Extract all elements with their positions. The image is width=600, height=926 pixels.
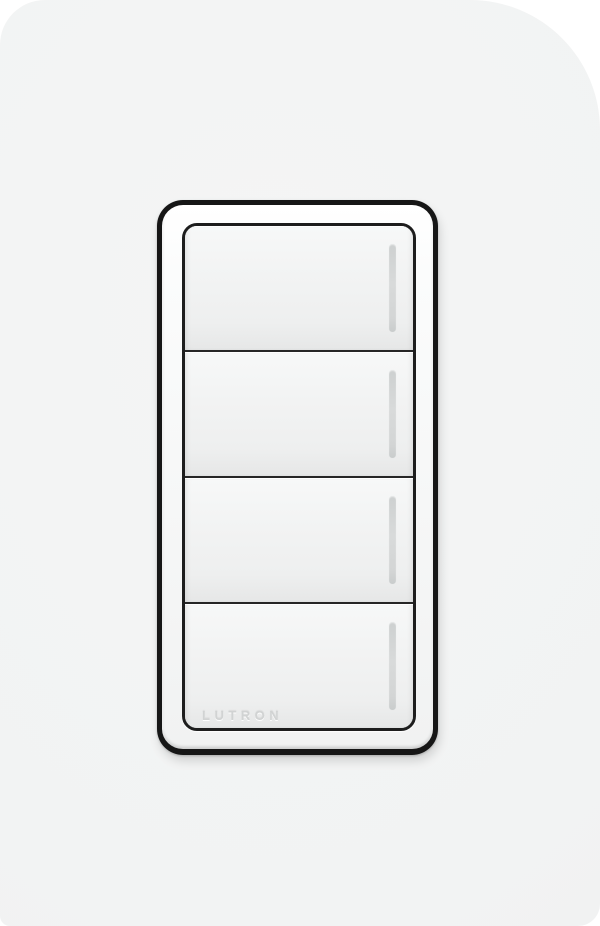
led-indicator-1 — [389, 244, 396, 332]
keypad-button-1[interactable] — [185, 226, 413, 350]
keypad-device: LUTRON — [157, 200, 438, 755]
keypad-button-2[interactable] — [185, 350, 413, 476]
led-indicator-4 — [389, 622, 396, 710]
wall-background: LUTRON — [0, 0, 600, 926]
keypad-button-4[interactable]: LUTRON — [185, 602, 413, 728]
led-indicator-2 — [389, 370, 396, 458]
lutron-brand-engraving: LUTRON — [202, 708, 283, 723]
keypad-button-3[interactable] — [185, 476, 413, 602]
button-opening-frame: LUTRON — [182, 223, 416, 731]
led-indicator-3 — [389, 496, 396, 584]
